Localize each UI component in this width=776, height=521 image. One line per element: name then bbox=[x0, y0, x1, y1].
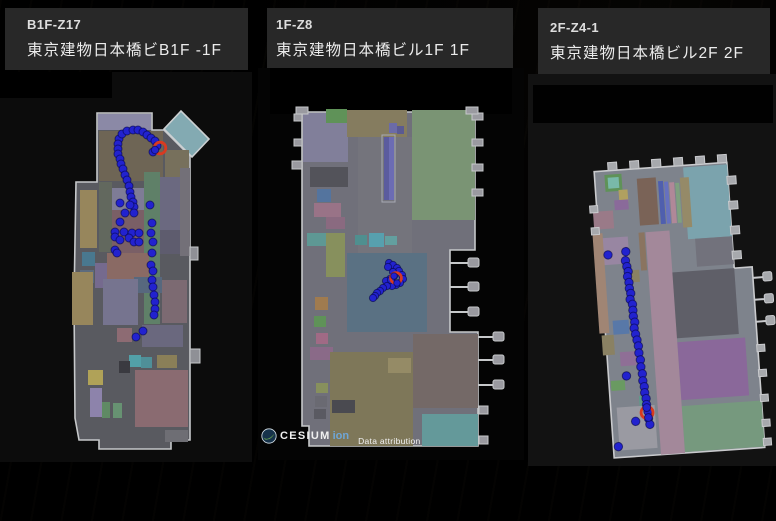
zone-id-1f: 1F-Z8 bbox=[276, 17, 513, 32]
building-title-2f: 東京建物日本橋ビル2F 2F bbox=[550, 41, 770, 63]
zone-id-2f: 2F-Z4-1 bbox=[550, 20, 770, 35]
panel-header-2f: 2F-Z4-1 東京建物日本橋ビル2F 2F bbox=[538, 8, 770, 74]
panel-header-1f: 1F-Z8 東京建物日本橋ビル1F 1F bbox=[267, 8, 513, 68]
cesium-ion-logo-icon[interactable] bbox=[261, 428, 277, 444]
zone-id-b1f: B1F-Z17 bbox=[27, 17, 248, 32]
panel-header-b1f: B1F-Z17 東京建物日本橋ビB1F -1F bbox=[5, 8, 248, 70]
cesium-brand-text[interactable]: CESIUM bbox=[280, 430, 331, 442]
building-title-1f: 東京建物日本橋ビル1F 1F bbox=[276, 38, 513, 60]
data-attribution-link[interactable]: Data attribution bbox=[358, 436, 420, 446]
cesium-attribution: CESIUM ion Data attribution bbox=[261, 425, 421, 447]
building-title-b1f: 東京建物日本橋ビB1F -1F bbox=[27, 38, 248, 60]
cesium-ion-text[interactable]: ion bbox=[333, 430, 350, 442]
